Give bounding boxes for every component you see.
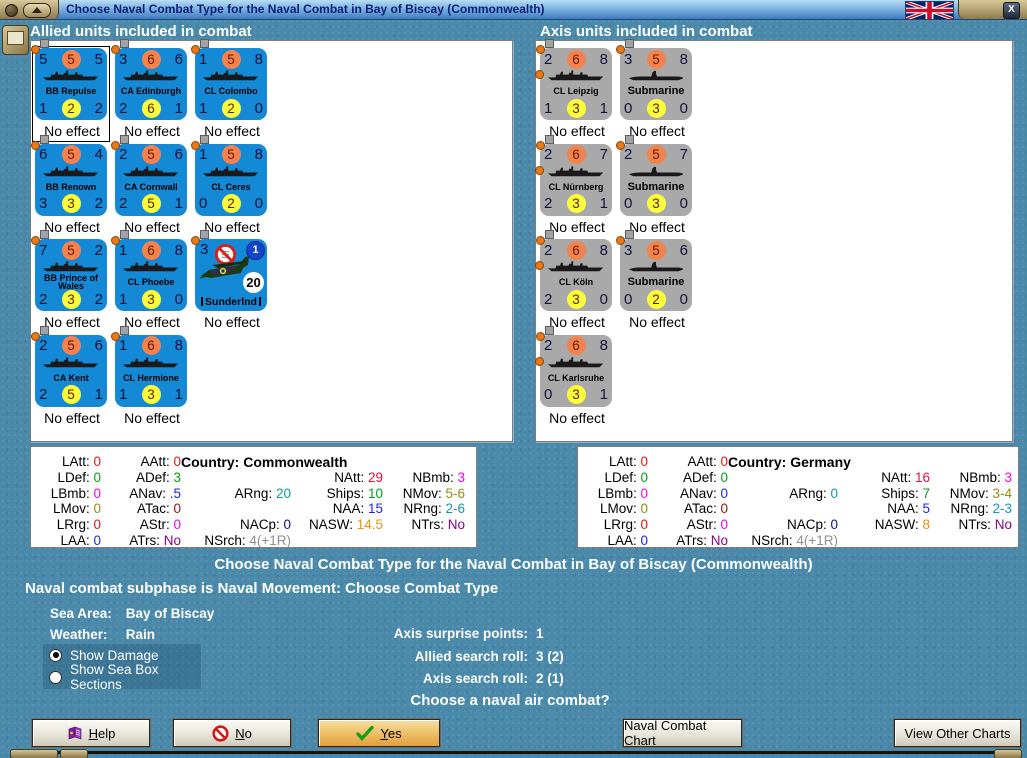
- warship-silhouette-icon: [115, 68, 187, 83]
- stat-lmov: LMov: 0: [37, 501, 101, 517]
- counter-right-value: 8: [175, 337, 183, 354]
- marker-square-icon: [200, 135, 209, 144]
- stat-nrng: NRng: 2-6: [383, 501, 465, 517]
- help-button[interactable]: Help: [32, 719, 150, 747]
- counter-circle-value: 5: [62, 385, 81, 404]
- counter-circle-value: 3: [142, 290, 161, 309]
- counter-right-value: 1: [175, 386, 183, 403]
- counter-values-row: 168: [115, 241, 187, 259]
- counter-right-value: 2: [95, 242, 103, 259]
- help-book-icon: [67, 726, 83, 741]
- yes-button-label: Yes: [380, 726, 401, 741]
- counter-right-value: 8: [255, 146, 263, 163]
- counter-left-value: 1: [199, 51, 207, 68]
- counter-values-row: 158: [195, 146, 267, 164]
- counter-values-row: 268: [540, 241, 612, 259]
- allied-search-roll-value: 3 (2): [536, 649, 564, 664]
- stat-nmov: NMov: 3-4: [930, 486, 1012, 502]
- warship-silhouette-icon: [35, 164, 107, 179]
- unit-counter[interactable]: 268CL Leipzig131: [540, 48, 612, 120]
- counter-values-row: 020: [195, 195, 267, 213]
- counter-left-value: 2: [39, 386, 47, 403]
- unit-name: CL Colombo: [195, 83, 267, 99]
- marker-dot-icon: [31, 236, 40, 245]
- counter-left-value: 0: [624, 291, 632, 308]
- air-count-badge: 1: [246, 241, 265, 260]
- unit-counter[interactable]: 267CL Nürnberg231: [540, 144, 612, 216]
- counter-left-value: 1: [199, 100, 207, 117]
- unit-name: CL Ceres: [195, 179, 267, 195]
- counter-right-value: 1: [175, 195, 183, 212]
- marker-dot-icon: [535, 70, 544, 79]
- unit-counter[interactable]: 268CL Karlsruhe031: [540, 335, 612, 407]
- counter-right-value: 2: [95, 100, 103, 117]
- marker-dot-icon: [535, 166, 544, 175]
- marker-square-icon: [200, 39, 209, 48]
- submarine-silhouette-icon: [620, 68, 692, 83]
- stat-nasw: NASW: 8: [838, 517, 930, 533]
- stat-nsrch: NSrch: 4(+1R): [181, 533, 291, 549]
- counter-right-value: 8: [600, 242, 608, 259]
- unit-bb-prince-of-wales[interactable]: 752BB Prince of Wales232No effect: [33, 238, 109, 332]
- unit-cl-n-rnberg[interactable]: 267CL Nürnberg231No effect: [538, 143, 614, 237]
- unit-counter[interactable]: 257Submarine030: [620, 144, 692, 216]
- counter-values-row: 030: [620, 195, 692, 213]
- axis-units-grid: 268CL Leipzig131No effect358Submarine030…: [538, 47, 698, 429]
- stat-ships: Ships: 7: [838, 486, 930, 502]
- naval-combat-chart-button[interactable]: Naval Combat Chart: [623, 719, 742, 747]
- counter-right-value: 2: [95, 291, 103, 308]
- marker-square-icon: [545, 39, 554, 48]
- marker-square-icon: [40, 135, 49, 144]
- counter-values-row: 332: [35, 195, 107, 213]
- marker-square-icon: [120, 230, 129, 239]
- unit-counter[interactable]: 158CL Colombo120: [195, 48, 267, 120]
- counter-circle-value: 5: [222, 145, 241, 164]
- marker-square-icon: [625, 230, 634, 239]
- unit-ca-cornwall[interactable]: 256CA Cornwall251No effect: [113, 143, 189, 237]
- unit-counter[interactable]: 268CL Köln230: [540, 239, 612, 311]
- counter-circle-value: 5: [62, 145, 81, 164]
- counter-left-value: 2: [119, 100, 127, 117]
- radio-dot-icon[interactable]: [49, 671, 62, 684]
- stat-anav: ANav: .5: [101, 486, 181, 502]
- stat-nbmb: NBmb: 3: [383, 470, 465, 486]
- weather-row: Weather: Rain: [50, 627, 155, 642]
- unit-counter[interactable]: 358Submarine030: [620, 48, 692, 120]
- allied-units-panel: 555BB Repulse122No effect366CA Edinburgh…: [30, 40, 513, 442]
- marker-dot-icon: [191, 141, 200, 150]
- counter-values-row: 030: [620, 99, 692, 117]
- yes-check-icon: [356, 726, 374, 741]
- counter-values-row: 251: [115, 195, 187, 213]
- submarine-silhouette-icon: [620, 164, 692, 179]
- stat-lbmb: LBmb: 0: [584, 486, 648, 502]
- marker-square-icon: [120, 39, 129, 48]
- counter-values-row: 230: [540, 290, 612, 308]
- marker-dot-icon: [616, 236, 625, 245]
- counter-circle-value: 3: [567, 290, 586, 309]
- unit-submarine[interactable]: 358Submarine030No effect: [618, 47, 694, 141]
- window-resize-tab-icon[interactable]: [10, 749, 58, 758]
- stat-lmov: LMov: 0: [584, 501, 648, 517]
- marker-square-icon: [120, 135, 129, 144]
- counter-right-value: 6: [680, 242, 688, 259]
- unit-submarine[interactable]: 356Submarine020No effect: [618, 238, 694, 332]
- radio-show-sea-box-sections[interactable]: Show Sea Box Sections: [43, 666, 201, 688]
- unit-cl-karlsruhe[interactable]: 268CL Karlsruhe031No effect: [538, 334, 614, 428]
- counter-right-value: 2: [95, 195, 103, 212]
- counter-values-row: 020: [620, 290, 692, 308]
- allied-panel-heading: Allied units included in combat: [30, 23, 252, 40]
- counter-values-row: 555: [35, 50, 107, 68]
- stat-adef: ADef: 0: [648, 470, 728, 486]
- axis-search-roll-row: Axis search roll:2 (1): [230, 667, 590, 690]
- counter-values-row: 232: [35, 290, 107, 308]
- radio-label: Show Sea Box Sections: [70, 662, 201, 692]
- unit-submarine[interactable]: 257Submarine030No effect: [618, 143, 694, 237]
- unit-counter[interactable]: 256CA Cornwall251: [115, 144, 187, 216]
- axis-search-roll-value: 2 (1): [536, 671, 564, 686]
- naval-air-combat-question: Choose a naval air combat?: [0, 692, 1020, 709]
- unit-status: No effect: [195, 314, 269, 330]
- stat-country: Country: Commonwealth: [181, 454, 465, 470]
- allied-search-roll-row: Allied search roll:3 (2): [230, 645, 590, 668]
- radio-dot-icon[interactable]: [49, 649, 62, 662]
- window-resize-tab-icon[interactable]: [994, 749, 1022, 758]
- yes-button[interactable]: Yes: [318, 719, 440, 747]
- unit-bb-repulse[interactable]: 555BB Repulse122No effect: [33, 47, 109, 141]
- marker-dot-icon: [111, 332, 120, 341]
- window-resize-tab-icon[interactable]: [60, 749, 88, 758]
- unit-status: No effect: [115, 410, 189, 426]
- stat-arng: ARng: 0: [728, 486, 838, 502]
- warship-silhouette-icon: [540, 68, 612, 83]
- stat-naa: NAA: 15: [291, 501, 383, 517]
- counter-values-row: 168: [115, 337, 187, 355]
- counter-values-row: 256: [115, 146, 187, 164]
- naval-combat-chart-label: Naval Combat Chart: [624, 718, 741, 748]
- stat-ntrs: NTrs: No: [930, 517, 1012, 533]
- counter-right-value: 0: [680, 291, 688, 308]
- counter-circle-value: 3: [647, 99, 666, 118]
- unit-status: No effect: [620, 314, 694, 330]
- counter-circle-value: 3: [142, 385, 161, 404]
- stat-aatt: AAtt: 0: [648, 454, 728, 470]
- stat-latt: LAtt: 0: [37, 454, 101, 470]
- counter-circle-value: 5: [647, 50, 666, 69]
- counter-right-value: 8: [680, 51, 688, 68]
- counter-right-value: 5: [95, 51, 103, 68]
- counter-circle-value: 2: [222, 99, 241, 118]
- stat-laa: LAA: 0: [584, 533, 648, 549]
- marker-dot-icon: [536, 236, 545, 245]
- axis-search-roll-label: Axis search roll:: [230, 671, 528, 686]
- marker-dot-icon: [111, 45, 120, 54]
- counter-left-value: 0: [544, 386, 552, 403]
- warship-silhouette-icon: [540, 164, 612, 179]
- counter-circle-value: 2: [647, 290, 666, 309]
- counter-circle-value: 3: [567, 385, 586, 404]
- unit-cl-leipzig[interactable]: 268CL Leipzig131No effect: [538, 47, 614, 141]
- warship-silhouette-icon: [35, 68, 107, 83]
- unit-counter[interactable]: 168CL Phoebe130: [115, 239, 187, 311]
- counter-right-value: 7: [600, 146, 608, 163]
- counter-circle-value: 2: [62, 99, 81, 118]
- stat-natt: NAtt: 29: [291, 470, 383, 486]
- help-button-label: Help: [89, 726, 116, 741]
- unit-name: Sunderlnd: [195, 296, 267, 308]
- stat-nsrch: NSrch: 4(+1R): [728, 533, 838, 549]
- window-chrome-right: X: [958, 0, 1027, 19]
- stat-atrs: ATrs: No: [101, 533, 181, 549]
- counter-values-row: 158: [195, 50, 267, 68]
- counter-circle-value: 6: [567, 241, 586, 260]
- unit-cl-k-ln[interactable]: 268CL Köln230No effect: [538, 238, 614, 332]
- marker-square-icon: [625, 39, 634, 48]
- allied-search-roll-label: Allied search roll:: [230, 649, 528, 664]
- air-range-value: 20: [243, 272, 264, 293]
- counter-right-value: 0: [600, 291, 608, 308]
- counter-left-value: 5: [39, 51, 47, 68]
- sea-area-value: Bay of Biscay: [126, 606, 215, 621]
- warship-silhouette-icon: [195, 164, 267, 179]
- counter-left-value: 1: [199, 146, 207, 163]
- marker-dot-icon: [536, 141, 545, 150]
- counter-values-row: 231: [540, 195, 612, 213]
- counter-values-row: 267: [540, 146, 612, 164]
- counter-left-value: 2: [544, 242, 552, 259]
- marker-square-icon: [120, 326, 129, 335]
- no-button[interactable]: No: [173, 719, 291, 747]
- counter-circle-value: 2: [222, 194, 241, 213]
- counter-right-value: 6: [175, 146, 183, 163]
- counter-left-value: 2: [544, 337, 552, 354]
- unit-ca-edinburgh[interactable]: 366CA Edinburgh261No effect: [113, 47, 189, 141]
- counter-right-value: 4: [95, 146, 103, 163]
- counter-values-row: 268: [540, 337, 612, 355]
- unit-cl-hermione[interactable]: 168CL Hermione131No effect: [113, 334, 189, 428]
- counter-right-value: 0: [255, 100, 263, 117]
- stat-lbmb: LBmb: 0: [37, 486, 101, 502]
- window-bottom-edge: [0, 749, 1027, 758]
- counter-left-value: 3: [624, 242, 632, 259]
- counter-left-value: 2: [39, 291, 47, 308]
- counter-left-value: 3: [39, 195, 47, 212]
- unit-name: Submarine: [620, 83, 692, 99]
- counter-right-value: 1: [600, 100, 608, 117]
- axis-stats-panel: LAtt: 0AAtt: 0Country: GermanyLDef: 0ADe…: [577, 446, 1019, 548]
- stat-laa: LAA: 0: [37, 533, 101, 549]
- close-icon[interactable]: X: [1003, 2, 1020, 19]
- unit-name: BB Repulse: [35, 83, 107, 99]
- stat-arng: ARng: 20: [181, 486, 291, 502]
- stat-ldef: LDef: 0: [584, 470, 648, 486]
- unit-cl-colombo[interactable]: 158CL Colombo120No effect: [193, 47, 269, 141]
- marker-dot-icon: [535, 261, 544, 270]
- window-knob-icon[interactable]: [5, 4, 18, 17]
- stat-nmov: NMov: 5-6: [383, 486, 465, 502]
- counter-right-value: 8: [600, 51, 608, 68]
- marker-dot-icon: [191, 236, 200, 245]
- stat-astr: AStr: 0: [648, 517, 728, 533]
- counter-right-value: 1: [600, 386, 608, 403]
- stat-latt: LAtt: 0: [584, 454, 648, 470]
- counter-left-value: 2: [544, 51, 552, 68]
- counter-left-value: 2: [119, 195, 127, 212]
- warship-silhouette-icon: [35, 259, 107, 274]
- weather-label: Weather:: [50, 627, 122, 642]
- warship-silhouette-icon: [115, 259, 187, 274]
- weather-value: Rain: [126, 627, 155, 642]
- marker-square-icon: [545, 135, 554, 144]
- counter-left-value: 0: [199, 195, 207, 212]
- counter-values-row: 131: [115, 386, 187, 404]
- counter-values-row: 122: [35, 99, 107, 117]
- unit-name: CL Karlsruhe: [540, 370, 612, 386]
- counter-left-value: 2: [624, 146, 632, 163]
- unit-counter[interactable]: 158CL Ceres020: [195, 144, 267, 216]
- unit-name: CL Nürnberg: [540, 179, 612, 195]
- counter-values-row: 268: [540, 50, 612, 68]
- counter-left-value: 0: [624, 100, 632, 117]
- counter-values-row: 358: [620, 50, 692, 68]
- marker-square-icon: [40, 230, 49, 239]
- unit-counter[interactable]: 366CA Edinburgh261: [115, 48, 187, 120]
- marker-dot-icon: [616, 141, 625, 150]
- window-minimize-icon[interactable]: [23, 3, 51, 18]
- stat-country: Country: Germany: [728, 454, 1012, 470]
- counter-left-value: 1: [544, 100, 552, 117]
- marker-square-icon: [545, 326, 554, 335]
- counter-circle-value: 6: [142, 336, 161, 355]
- stat-lrrg: LRrg: 0: [584, 517, 648, 533]
- no-button-label: No: [235, 726, 252, 741]
- marker-dot-icon: [31, 332, 40, 341]
- unit-counter[interactable]: 356Submarine020: [620, 239, 692, 311]
- counter-left-value: 7: [39, 242, 47, 259]
- warship-silhouette-icon: [540, 355, 612, 370]
- counter-values-row: 130: [115, 290, 187, 308]
- marker-dot-icon: [191, 45, 200, 54]
- submarine-silhouette-icon: [620, 259, 692, 274]
- unit-cl-phoebe[interactable]: 168CL Phoebe130No effect: [113, 238, 189, 332]
- sea-area-row: Sea Area: Bay of Biscay: [50, 606, 214, 621]
- marker-square-icon: [625, 135, 634, 144]
- window-title: Choose Naval Combat Type for the Naval C…: [66, 0, 545, 19]
- counter-circle-value: 5: [62, 336, 81, 355]
- unit-sunderlnd[interactable]: 3120SunderlndNo effect: [193, 238, 269, 332]
- counter-values-row: 356: [620, 241, 692, 259]
- unit-bb-renown[interactable]: 654BB Renown332No effect: [33, 143, 109, 237]
- uk-flag-icon: [905, 1, 954, 20]
- axis-surprise-points-label: Axis surprise points:: [230, 626, 528, 641]
- display-options-group: Show DamageShow Sea Box Sections: [43, 644, 201, 689]
- stat-nacp: NACp: 0: [728, 517, 838, 533]
- marker-dot-icon: [536, 45, 545, 54]
- combat-type-heading: Choose Naval Combat Type for the Naval C…: [0, 556, 1027, 573]
- unit-counter[interactable]: 752BB Prince of Wales232: [35, 239, 107, 311]
- marker-square-icon: [545, 230, 554, 239]
- counter-circle-value: 5: [62, 241, 81, 260]
- unit-counter[interactable]: 555BB Repulse122: [35, 48, 107, 120]
- stat-naa: NAA: 5: [838, 501, 930, 517]
- window-chrome-left: [0, 0, 59, 19]
- marker-dot-icon: [31, 45, 40, 54]
- counter-left-value: 2: [119, 146, 127, 163]
- marker-square-icon: [40, 326, 49, 335]
- unit-counter[interactable]: 168CL Hermione131: [115, 335, 187, 407]
- window-chrome-icon[interactable]: [2, 25, 29, 55]
- unit-cl-ceres[interactable]: 158CL Ceres020No effect: [193, 143, 269, 237]
- subphase-text: Naval combat subphase is Naval Movement:…: [25, 580, 498, 597]
- counter-right-value: 8: [255, 51, 263, 68]
- unit-name: BB Prince of Wales: [35, 274, 107, 290]
- unit-counter[interactable]: 654BB Renown332: [35, 144, 107, 216]
- stat-lrrg: LRrg: 0: [37, 517, 101, 533]
- counter-left-value: 1: [119, 386, 127, 403]
- view-other-charts-button[interactable]: View Other Charts: [894, 719, 1021, 747]
- unit-ca-kent[interactable]: 256CA Kent251No effect: [33, 334, 109, 428]
- no-prohibited-icon: [212, 725, 229, 742]
- counter-circle-value: 6: [142, 50, 161, 69]
- unit-counter[interactable]: 256CA Kent251: [35, 335, 107, 407]
- sea-area-label: Sea Area:: [50, 606, 122, 621]
- allied-units-grid: 555BB Repulse122No effect366CA Edinburgh…: [33, 47, 273, 429]
- naval-combat-dialog: Choose Naval Combat Type for the Naval C…: [0, 0, 1027, 758]
- counter-circle-value: 3: [62, 290, 81, 309]
- counter-circle-value: 6: [567, 336, 586, 355]
- counter-circle-value: 5: [142, 194, 161, 213]
- unit-status: No effect: [540, 410, 614, 426]
- counter-right-value: 6: [95, 337, 103, 354]
- marker-dot-icon: [111, 236, 120, 245]
- unit-name: Submarine: [620, 274, 692, 290]
- counter-left-value: 0: [624, 195, 632, 212]
- counter-values-row: 752: [35, 241, 107, 259]
- counter-circle-value: 3: [647, 194, 666, 213]
- counter-left-value: 6: [39, 146, 47, 163]
- counter-left-value: 3: [119, 51, 127, 68]
- stat-nacp: NACp: 0: [181, 517, 291, 533]
- stat-ntrs: NTrs: No: [383, 517, 465, 533]
- counter-right-value: 0: [175, 291, 183, 308]
- unit-name: CL Hermione: [115, 370, 187, 386]
- counter-left-value: 2: [39, 337, 47, 354]
- unit-name: CA Kent: [35, 370, 107, 386]
- axis-surprise-points-row: Axis surprise points:1: [230, 622, 590, 645]
- stat-nasw: NASW: 14.5: [291, 517, 383, 533]
- stat-nbmb: NBmb: 3: [930, 470, 1012, 486]
- counter-right-value: 1: [600, 195, 608, 212]
- counter-left-value: 1: [119, 242, 127, 259]
- radio-label: Show Damage: [70, 648, 159, 663]
- stat-ships: Ships: 10: [291, 486, 383, 502]
- unit-counter[interactable]: 3120Sunderlnd: [195, 239, 267, 311]
- counter-right-value: 0: [255, 195, 263, 212]
- counter-circle-value: 5: [142, 145, 161, 164]
- marker-dot-icon: [536, 332, 545, 341]
- marker-dot-icon: [111, 141, 120, 150]
- counter-circle-value: 3: [62, 194, 81, 213]
- counter-left-value: 2: [544, 291, 552, 308]
- counter-values-row: 120: [195, 99, 267, 117]
- marker-dot-icon: [31, 141, 40, 150]
- marker-square-icon: [200, 230, 209, 239]
- counter-values-row: 257: [620, 146, 692, 164]
- counter-left-value: 2: [544, 195, 552, 212]
- unit-name: CL Leipzig: [540, 83, 612, 99]
